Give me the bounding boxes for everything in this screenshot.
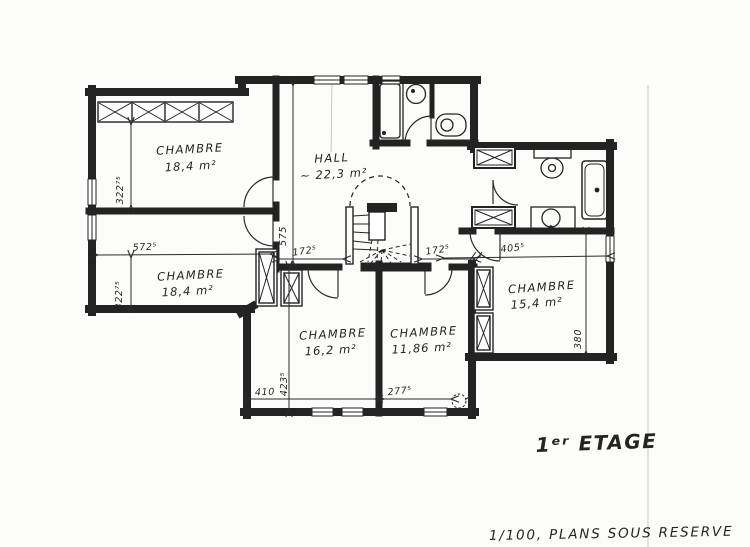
toilet-icon xyxy=(436,114,466,136)
dim-label-s1-width: 410 xyxy=(255,387,275,399)
door-arc xyxy=(493,180,518,205)
dim-label-w-height: 322⁷⁵ xyxy=(114,281,125,310)
washbasin-icon xyxy=(407,85,426,104)
shower-icon xyxy=(377,81,403,141)
door-arc xyxy=(470,231,500,261)
room-area-chambre-s1: 16,2 m² xyxy=(304,342,357,359)
dim-label-stair-right: 172⁵ xyxy=(425,243,451,257)
wardrobe-icon xyxy=(474,313,493,353)
dim-label-hall-height: 575 xyxy=(278,226,289,246)
room-name-chambre-e: CHAMBRE xyxy=(508,278,576,297)
door-arc xyxy=(425,268,452,295)
dim-label-w-width: 572⁵ xyxy=(132,241,157,253)
window xyxy=(382,76,400,84)
wardrobe-icon xyxy=(472,207,515,228)
floor-title: 1ᵉʳ ETAGE xyxy=(535,429,657,457)
room-area-hall: ~ 22,3 m² xyxy=(300,165,368,183)
wardrobe-icon xyxy=(256,249,277,306)
window xyxy=(344,76,368,84)
dim-label-s1-height: 423⁵ xyxy=(279,372,290,396)
dim-label-e-width: 405⁵ xyxy=(500,242,525,255)
wardrobe-icon xyxy=(98,102,233,122)
wc-icon xyxy=(534,147,571,178)
door-arc xyxy=(244,177,274,207)
dim-label-stair-left: 172⁵ xyxy=(292,244,318,258)
room-name-chambre-nw: CHAMBRE xyxy=(156,140,224,158)
floor-plan-canvas: CHAMBRE 18,4 m² HALL ~ 22,3 m² CHAMBRE 1… xyxy=(0,0,750,547)
wardrobe-icon xyxy=(281,270,302,306)
footer-note: 1/100, PLANS SOUS RESERVE xyxy=(489,524,734,544)
room-area-chambre-s2: 11,86 m² xyxy=(391,339,452,356)
door-arc xyxy=(244,216,274,246)
door-arc xyxy=(405,116,432,143)
room-name-hall: HALL xyxy=(314,150,350,166)
stairs-icon xyxy=(346,176,418,264)
room-name-chambre-s1: CHAMBRE xyxy=(299,325,367,343)
window xyxy=(424,408,447,416)
dim-label-s2-width: 277⁵ xyxy=(387,385,412,398)
room-area-chambre-w: 18,4 m² xyxy=(161,283,214,300)
dim-label-nw-height: 322⁷⁵ xyxy=(115,176,126,205)
window xyxy=(342,408,363,416)
room-name-chambre-s2: CHAMBRE xyxy=(390,323,458,341)
bathtub-icon xyxy=(582,161,607,219)
window xyxy=(88,179,96,205)
window xyxy=(88,215,96,240)
wardrobe-icon xyxy=(474,147,515,168)
room-name-chambre-w: CHAMBRE xyxy=(157,266,225,284)
window xyxy=(606,236,614,262)
door-arc xyxy=(308,268,338,298)
room-area-chambre-e: 15,4 m² xyxy=(510,294,563,312)
window xyxy=(314,76,340,84)
room-area-chambre-nw: 18,4 m² xyxy=(164,158,217,175)
sink-icon xyxy=(531,207,575,229)
window xyxy=(312,408,333,416)
wardrobe-icon xyxy=(474,267,493,310)
dim-label-e-height: 380 xyxy=(573,329,584,349)
floor-plan-page: CHAMBRE 18,4 m² HALL ~ 22,3 m² CHAMBRE 1… xyxy=(0,0,750,547)
